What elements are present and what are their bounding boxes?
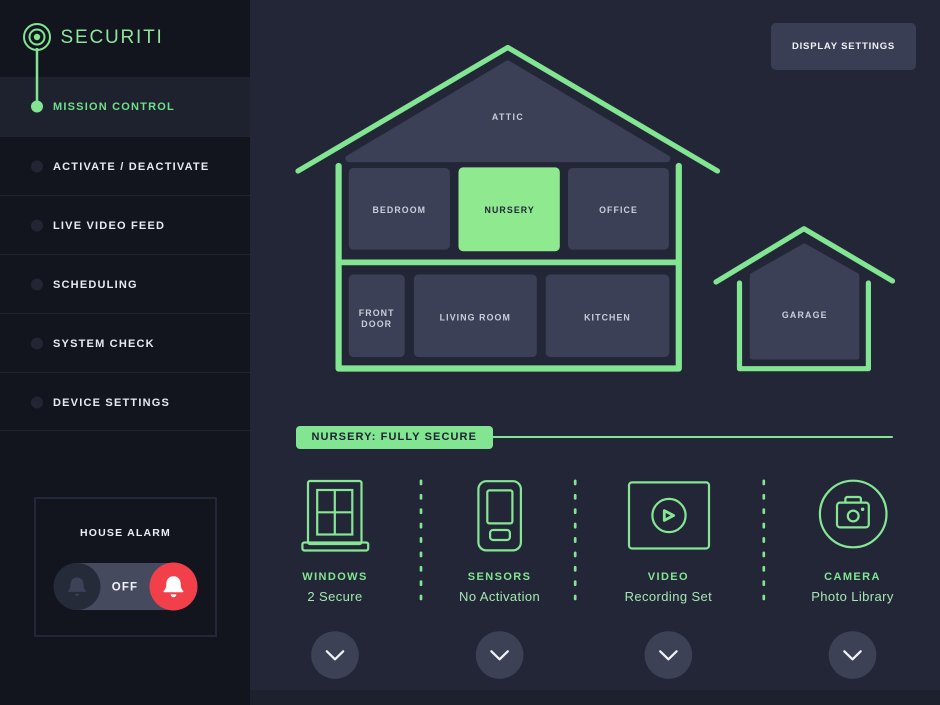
svg-text:DOOR: DOOR (361, 319, 392, 329)
svg-text:ATTIC: ATTIC (492, 112, 524, 122)
svg-text:GARAGE: GARAGE (782, 310, 828, 320)
svg-text:NURSERY: NURSERY (485, 205, 535, 215)
svg-text:KITCHEN: KITCHEN (584, 312, 631, 322)
svg-text:OFFICE: OFFICE (599, 205, 638, 215)
svg-text:LIVING ROOM: LIVING ROOM (440, 312, 511, 322)
svg-text:BEDROOM: BEDROOM (372, 205, 426, 215)
svg-text:FRONT: FRONT (359, 308, 395, 318)
svg-text:OFF: OFF (112, 582, 139, 594)
